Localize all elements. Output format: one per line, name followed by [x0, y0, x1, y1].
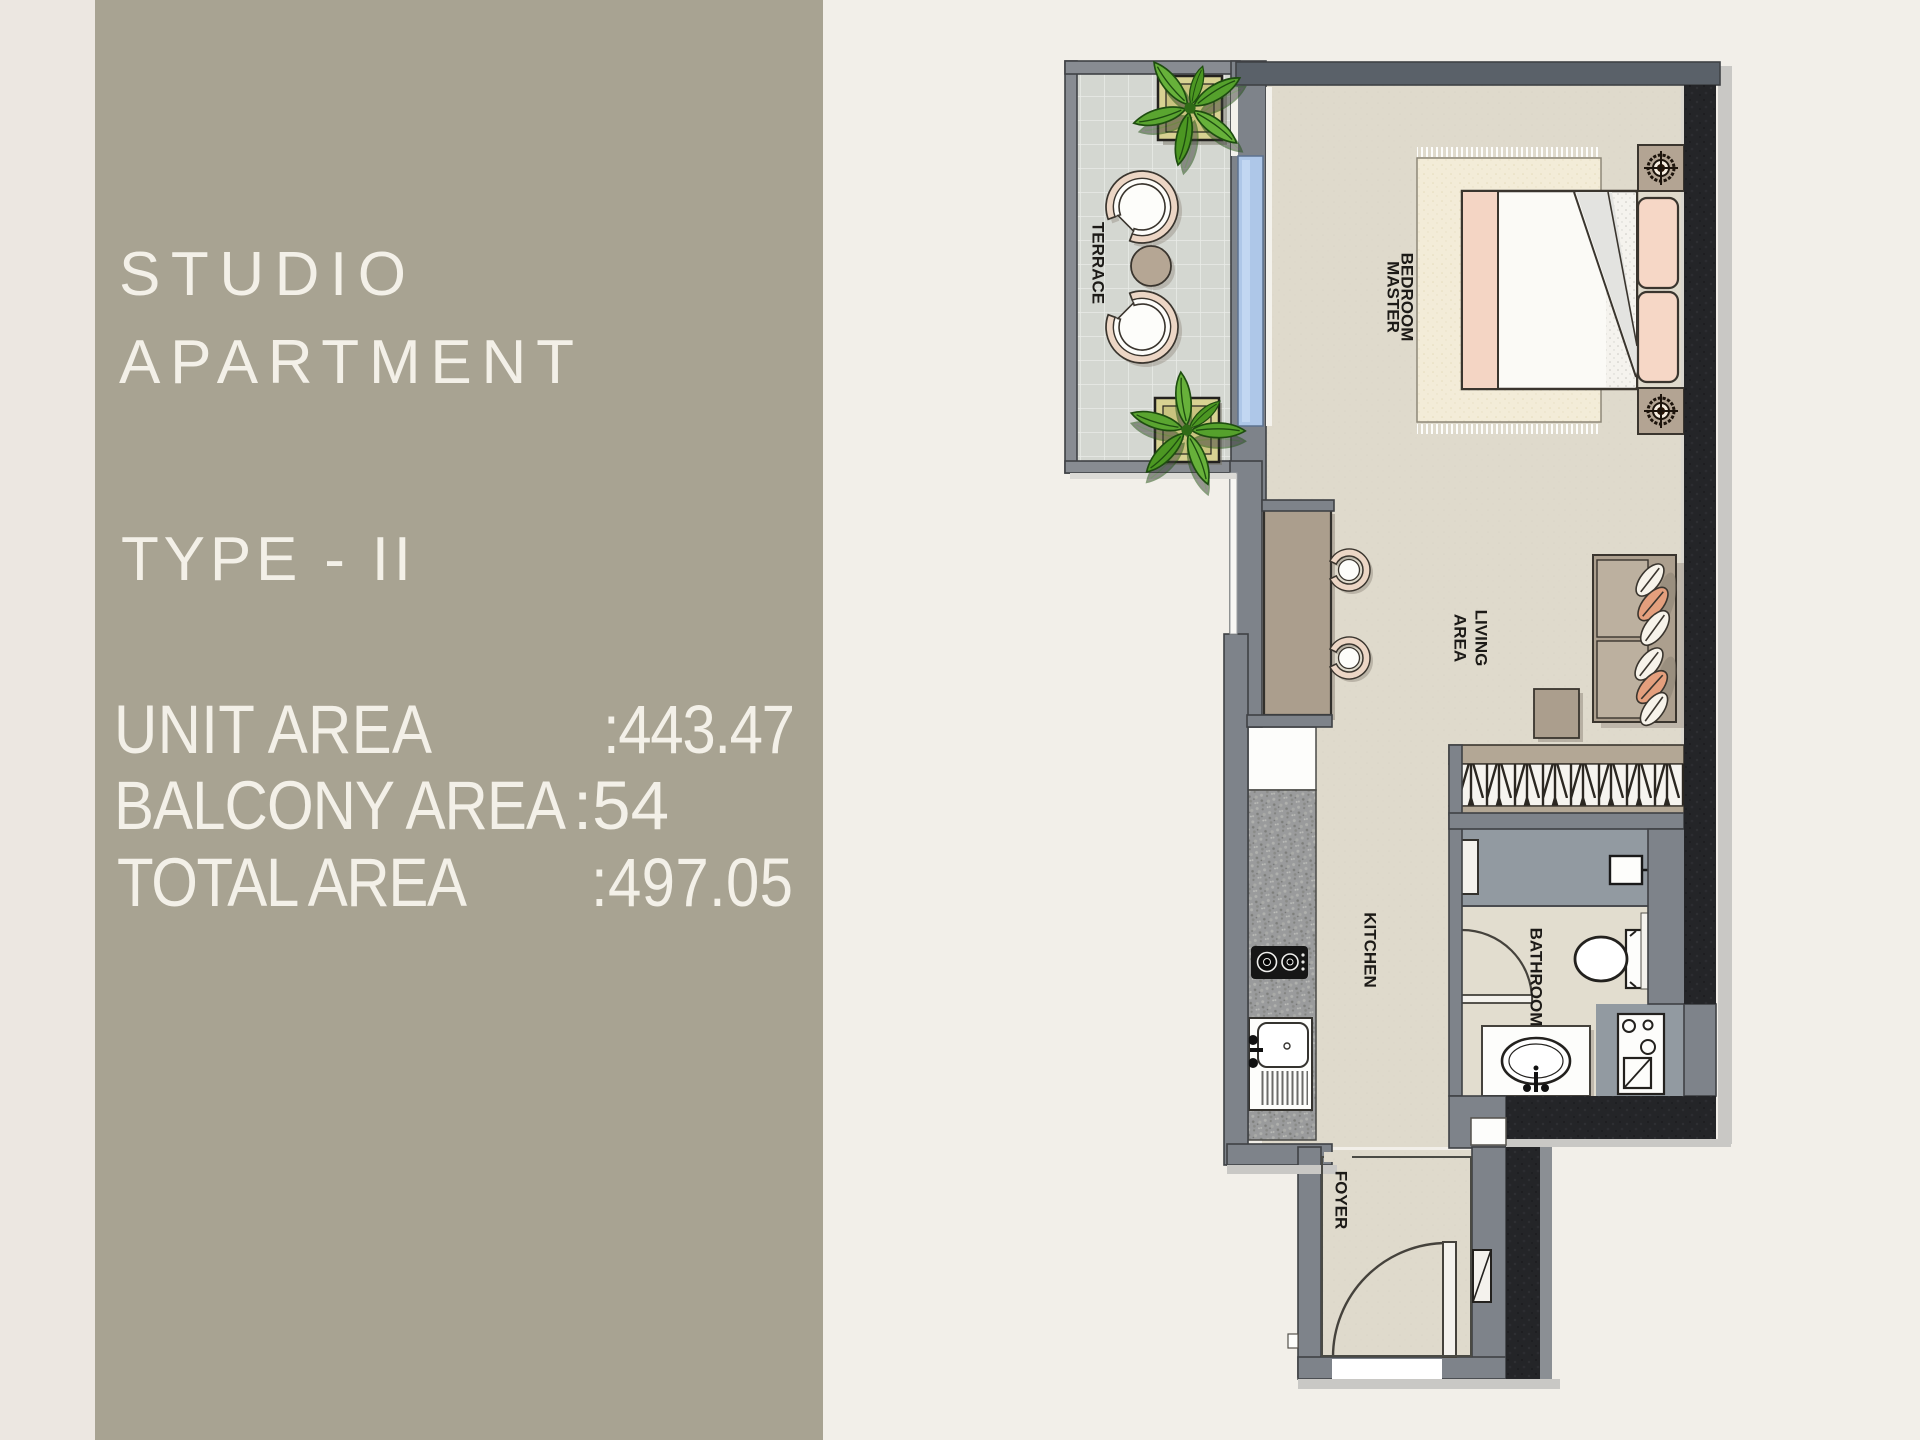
svg-text:AREA: AREA: [1451, 614, 1470, 662]
svg-text:BEDROOM: BEDROOM: [1398, 253, 1417, 342]
svg-text:KITCHEN: KITCHEN: [1361, 912, 1380, 988]
svg-text::54: :54: [573, 766, 669, 844]
svg-text:LIVING: LIVING: [1472, 610, 1491, 667]
svg-text:BATHROOM: BATHROOM: [1527, 928, 1546, 1027]
svg-text:FOYER: FOYER: [1332, 1171, 1351, 1230]
svg-text:APARTMENT: APARTMENT: [119, 328, 574, 397]
svg-text:TOTAL AREA: TOTAL AREA: [117, 843, 467, 921]
svg-text:BALCONY AREA: BALCONY AREA: [114, 766, 566, 844]
svg-text::443.47: :443.47: [603, 690, 795, 768]
svg-text:TERRACE: TERRACE: [1089, 222, 1108, 304]
svg-text:UNIT AREA: UNIT AREA: [114, 690, 432, 768]
svg-text::497.05: :497.05: [591, 843, 793, 921]
